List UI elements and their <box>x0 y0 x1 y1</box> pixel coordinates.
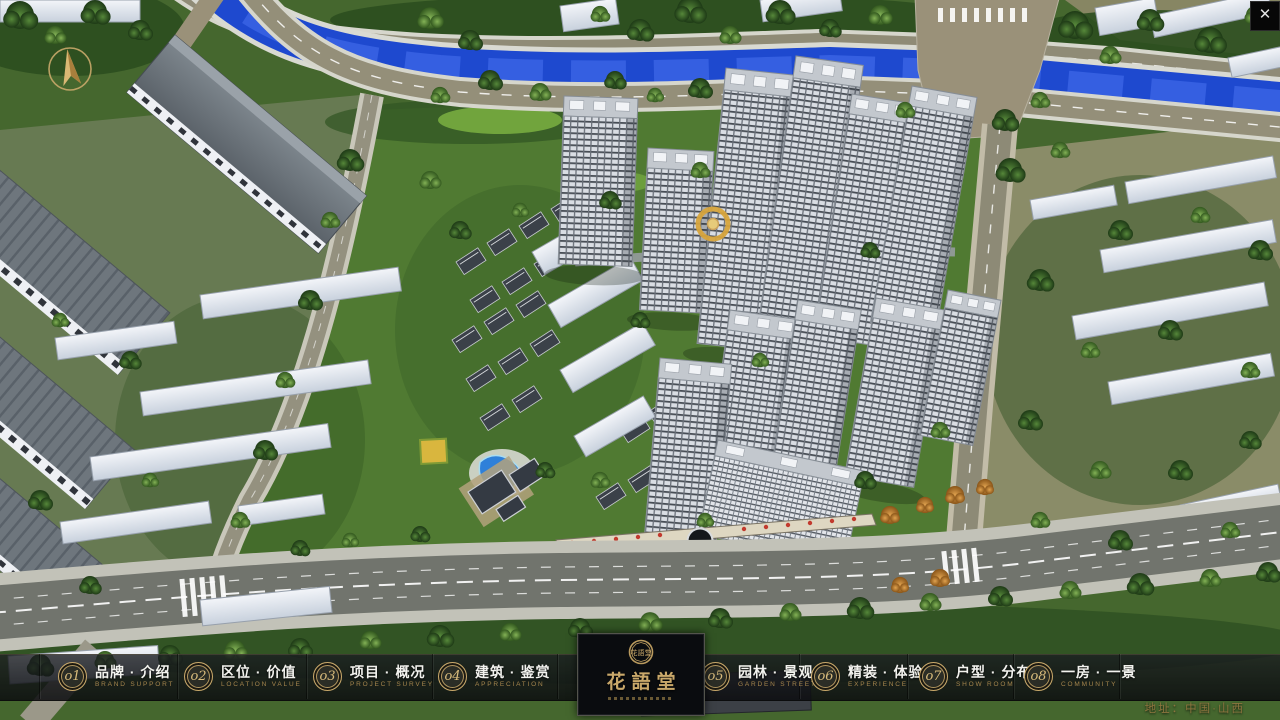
nav-item-location[interactable]: o2 区位 · 价值 LOCATION VALUE <box>184 654 302 699</box>
nav-label-en: PROJECT SURVEY <box>350 682 434 689</box>
compass-icon <box>46 45 94 93</box>
nav-item-project[interactable]: o3 项目 · 概况 PROJECT SURVEY <box>313 654 434 699</box>
project-address: 地址：中国·山西 <box>1145 700 1245 716</box>
nav-label-en: LOCATION VALUE <box>221 682 302 689</box>
number-badge-icon: o1 <box>58 662 87 691</box>
number-badge-icon: o3 <box>313 662 342 691</box>
nav-item-garden[interactable]: o5 园林 · 景观 GARDEN STREET <box>701 654 817 699</box>
nav-label-zh: 精装 · 体验 <box>848 665 923 679</box>
number-badge-icon: o7 <box>919 662 948 691</box>
nav-label-en: APPRECIATION <box>475 682 550 689</box>
nav-label-zh: 区位 · 价值 <box>221 665 302 679</box>
nav-item-interior[interactable]: o6 精装 · 体验 EXPERIENCE <box>811 654 923 699</box>
nav-label-en: COMMUNITY <box>1061 682 1136 689</box>
nav-label-zh: 品牌 · 介绍 <box>95 665 174 679</box>
number-badge-icon: o4 <box>438 662 467 691</box>
nav-label-zh: 项目 · 概况 <box>350 665 434 679</box>
brand-logo-panel[interactable]: 花語堂 花語堂 <box>577 633 705 716</box>
nav-label-en: EXPERIENCE <box>848 682 923 689</box>
nav-label-zh: 建筑 · 鉴赏 <box>475 665 550 679</box>
number-badge-icon: o8 <box>1024 662 1053 691</box>
number-badge-icon: o5 <box>701 662 730 691</box>
brand-seal-icon: 花語堂 <box>628 639 654 665</box>
nav-label-zh: 户型 · 分布 <box>956 665 1031 679</box>
presentation-window: ✕ o1 品牌 · 介绍 BRAND SUPPORT o2 区位 · 价值 LO… <box>0 0 1280 720</box>
nav-separator <box>40 654 41 699</box>
nav-item-brand[interactable]: o1 品牌 · 介绍 BRAND SUPPORT <box>58 654 174 699</box>
brand-title: 花語堂 <box>600 667 681 694</box>
nav-label-zh: 一房 · 一景 <box>1061 665 1136 679</box>
map-canvas[interactable] <box>0 0 1280 720</box>
nav-label-zh: 园林 · 景观 <box>738 665 817 679</box>
close-button[interactable]: ✕ <box>1250 1 1280 31</box>
number-badge-icon: o2 <box>184 662 213 691</box>
nav-label-en: GARDEN STREET <box>738 682 817 689</box>
nav-label-en: BRAND SUPPORT <box>95 682 174 689</box>
nav-item-architecture[interactable]: o4 建筑 · 鉴赏 APPRECIATION <box>438 654 550 699</box>
nav-item-floorplan[interactable]: o7 户型 · 分布 SHOW ROOM <box>919 654 1031 699</box>
nav-label-en: SHOW ROOM <box>956 682 1031 689</box>
svg-text:花語堂: 花語堂 <box>631 648 652 657</box>
nav-separator <box>178 654 179 699</box>
nav-separator <box>307 654 308 699</box>
nav-separator <box>558 654 559 699</box>
number-badge-icon: o6 <box>811 662 840 691</box>
logo-tagline <box>608 697 674 700</box>
nav-item-views[interactable]: o8 一房 · 一景 COMMUNITY <box>1024 654 1136 699</box>
